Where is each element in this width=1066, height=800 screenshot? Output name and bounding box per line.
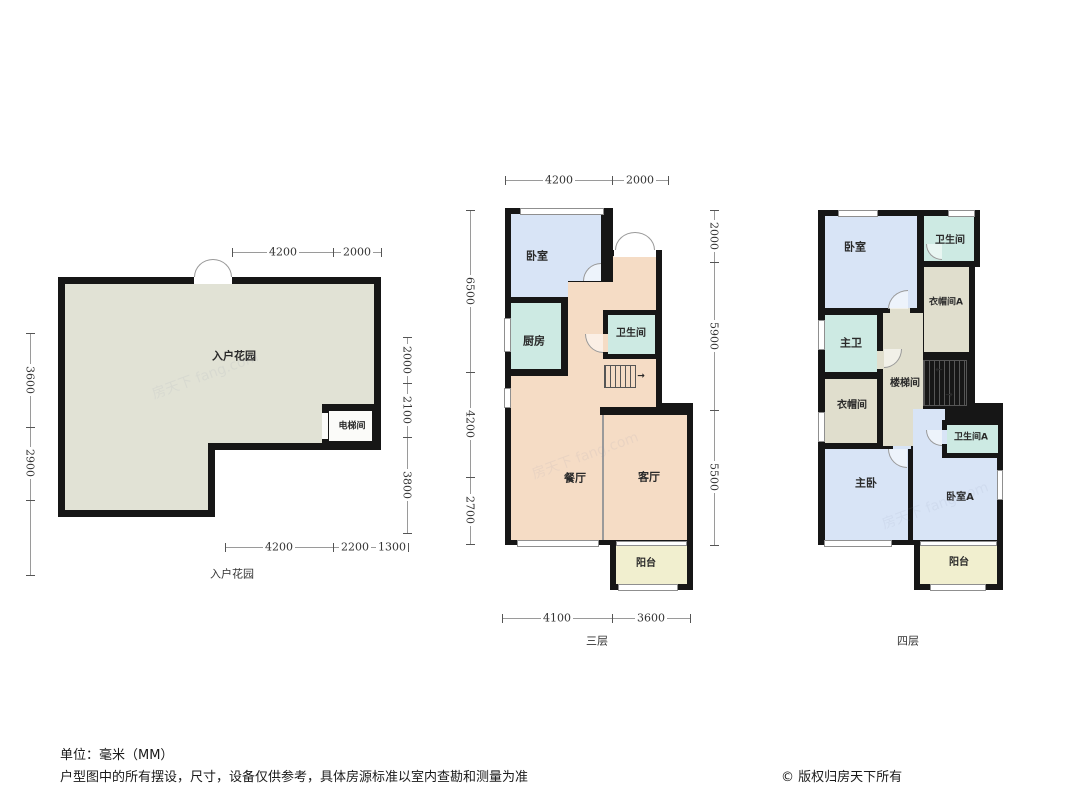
dim-label: 4100: [541, 613, 573, 624]
window: [504, 388, 511, 408]
dim-label: 4200: [465, 408, 476, 440]
dim-tick: [333, 248, 334, 257]
window: [618, 584, 678, 591]
dim-label: 2000: [402, 344, 413, 376]
dim-tick: [408, 543, 409, 552]
room-label-balcony: 阳台: [636, 559, 656, 569]
stairs-arrow: →: [945, 392, 953, 401]
dim-label: 4200: [263, 542, 295, 553]
room-label-bathroomA: 卫生间A: [954, 434, 988, 443]
stairs-arrow: ←: [935, 367, 943, 376]
entry-garden-plan-caption: 入户花园: [210, 569, 254, 580]
bathroom-door-gap: [603, 334, 608, 352]
living-floor: [656, 415, 687, 540]
dim-label: 4200: [543, 175, 575, 186]
dim-label: 4200: [267, 247, 299, 258]
dim-tick: [466, 372, 475, 373]
stairs-arrow: →: [637, 373, 645, 382]
window: [504, 318, 511, 352]
entry-door-leaf: [635, 232, 655, 250]
entry-door-gap: [194, 277, 232, 284]
dim-tick: [403, 437, 412, 438]
dim-tick: [225, 543, 226, 552]
room-label-bathroom: 卫生间: [616, 329, 646, 339]
window: [517, 540, 599, 547]
dim-tick: [612, 614, 613, 623]
dim-tick: [26, 333, 35, 334]
closet-floor: [825, 379, 877, 443]
window: [948, 210, 975, 217]
window: [616, 541, 687, 546]
dim-label: 1300: [376, 542, 408, 553]
dim-label: 2000: [341, 247, 373, 258]
master-bath-door-gap: [877, 351, 883, 369]
bathroomA-door-gap: [942, 430, 947, 444]
dim-label: 2000: [709, 220, 720, 252]
stairs: [604, 365, 636, 388]
dim-tick: [466, 210, 475, 211]
copyright-note: © 版权归房天下所有: [781, 766, 902, 785]
dim-tick: [333, 543, 334, 552]
dim-tick: [505, 176, 506, 185]
room-label-bedroom: 卧室: [526, 251, 548, 262]
entry-door-leaf: [213, 259, 232, 277]
room-label-living: 客厅: [638, 472, 660, 483]
dim-tick: [381, 248, 382, 257]
room-divider: [602, 415, 604, 540]
room-label-balcony: 阳台: [949, 558, 969, 568]
window: [838, 210, 878, 217]
dim-tick: [26, 427, 35, 428]
dim-line: [714, 210, 715, 545]
dim-tick: [403, 533, 412, 534]
dim-tick: [26, 500, 35, 501]
entry-door-leaf: [615, 232, 635, 250]
floor4-plan-caption: 四层: [897, 636, 919, 647]
dim-tick: [710, 210, 719, 211]
dim-label: 6500: [465, 275, 476, 307]
floorplan-canvas: 入户花园电梯间420020002000210038004200220013003…: [0, 0, 1066, 800]
room-label-master-bedroom: 主卧: [855, 478, 877, 489]
entry-door-gap: [614, 250, 656, 257]
dim-label: 2900: [25, 447, 36, 479]
dim-label: 2000: [624, 175, 656, 186]
dim-tick: [466, 477, 475, 478]
dim-label: 5500: [709, 461, 720, 493]
window: [520, 208, 604, 215]
dim-label: 5900: [709, 320, 720, 352]
room-label-bathroom: 卫生间: [935, 236, 965, 246]
room-label-elevator: 电梯间: [338, 423, 365, 432]
dim-tick: [232, 248, 233, 257]
dim-tick: [612, 176, 613, 185]
dim-label: 3600: [25, 364, 36, 396]
entry-door-leaf: [194, 259, 213, 277]
dim-tick: [403, 337, 412, 338]
dim-label: 2700: [465, 494, 476, 526]
dim-tick: [710, 262, 719, 263]
room-label-stairwell: 楼梯间: [890, 379, 920, 389]
dim-tick: [466, 544, 475, 545]
hall-floor: [613, 256, 656, 282]
closetA-floor: [924, 267, 969, 352]
dim-tick: [690, 614, 691, 623]
window: [930, 584, 986, 591]
dim-tick: [403, 383, 412, 384]
room-label-closet: 衣帽间: [837, 401, 867, 411]
elevator-door-gap: [322, 413, 328, 439]
disclaimer-note: 户型图中的所有摆设，尺寸，设备仅供参考，具体房源标准以室内查勘和测量为准: [60, 766, 528, 785]
unit-note: 单位：毫米（MM）: [60, 744, 173, 763]
dim-tick: [26, 575, 35, 576]
room-label-closetA: 衣帽间A: [929, 299, 963, 308]
dim-label: 3600: [635, 613, 667, 624]
dim-tick: [710, 545, 719, 546]
window: [818, 320, 825, 350]
floor3-plan-caption: 三层: [586, 636, 608, 647]
dim-tick: [710, 410, 719, 411]
room-label-master-bath: 主卫: [840, 338, 862, 349]
window: [818, 412, 825, 442]
dim-tick: [502, 614, 503, 623]
dim-label: 2100: [402, 394, 413, 426]
window: [997, 470, 1003, 500]
window: [824, 540, 892, 547]
dim-label: 2200: [339, 542, 371, 553]
dim-tick: [668, 176, 669, 185]
room-label-dining: 餐厅: [564, 473, 586, 484]
garden-floor: [65, 284, 208, 510]
room-label-bedroom: 卧室: [844, 242, 866, 253]
living-wall: [600, 407, 690, 415]
dim-label: 3800: [402, 469, 413, 501]
window: [920, 541, 997, 546]
room-label-kitchen: 厨房: [523, 336, 545, 347]
